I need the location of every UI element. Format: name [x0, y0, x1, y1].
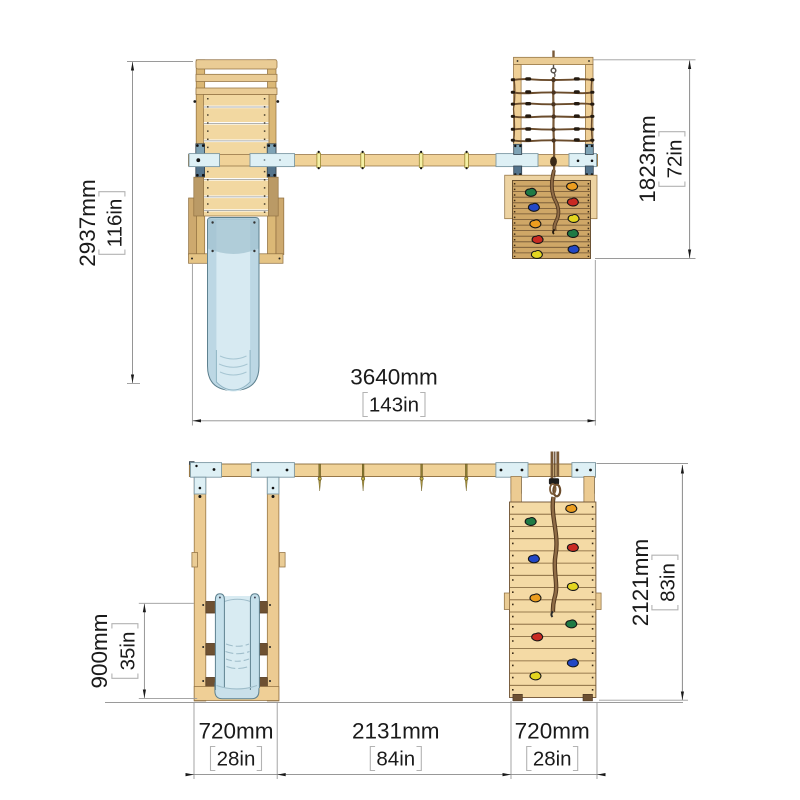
svg-text:2131mm: 2131mm — [352, 719, 440, 744]
svg-text:900mm: 900mm — [87, 613, 112, 688]
svg-text:35in: 35in — [117, 632, 140, 671]
svg-text:83in: 83in — [657, 563, 680, 602]
svg-text:28in: 28in — [533, 748, 572, 771]
svg-text:720mm: 720mm — [515, 719, 590, 744]
svg-text:116in: 116in — [104, 199, 127, 248]
svg-text:3640mm: 3640mm — [350, 365, 438, 390]
svg-text:143in: 143in — [369, 394, 419, 417]
svg-text:84in: 84in — [376, 748, 415, 771]
svg-text:28in: 28in — [217, 748, 256, 771]
svg-text:72in: 72in — [664, 140, 687, 179]
svg-text:2121mm: 2121mm — [628, 539, 653, 627]
svg-text:2937mm: 2937mm — [75, 179, 100, 267]
svg-text:720mm: 720mm — [198, 719, 273, 744]
svg-text:1823mm: 1823mm — [635, 115, 660, 203]
